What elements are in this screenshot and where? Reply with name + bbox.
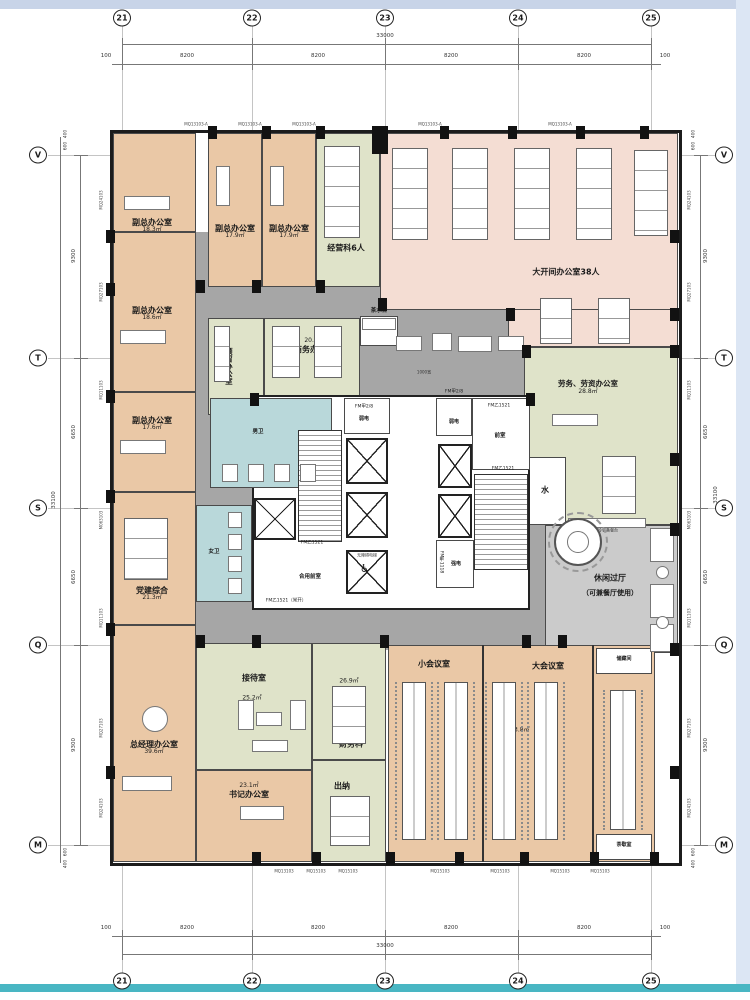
dim-text: 8200 [311, 53, 325, 59]
dim-tick [122, 38, 123, 70]
conference-table [534, 682, 558, 840]
structural-column [208, 126, 217, 139]
structural-column [650, 852, 659, 865]
dim-text: 400 [64, 130, 69, 139]
conference-table [610, 690, 636, 830]
structural-column [106, 490, 115, 503]
furniture [396, 336, 422, 351]
grid-bubble: 22 [243, 10, 261, 27]
dim-text: 8200 [311, 925, 325, 931]
stair-left [298, 430, 342, 542]
furniture [362, 318, 396, 330]
furniture [650, 584, 674, 618]
fm-label: FM乙1521 [488, 403, 510, 408]
dim-text: 8200 [577, 53, 591, 59]
furniture [498, 336, 524, 351]
structural-column [312, 852, 321, 865]
grid-bubble: 22 [243, 973, 261, 990]
structural-column [576, 126, 585, 139]
dim-text: 600 [692, 848, 697, 857]
fm-label: FM甲2/8 [355, 404, 373, 409]
dim-text: 8200 [444, 925, 458, 931]
elevator-shaft [438, 444, 472, 488]
structural-column [252, 280, 261, 293]
room-label: 接待室 [242, 673, 266, 682]
dim-tick [252, 930, 253, 960]
fm-label: FM甲1118 [438, 551, 443, 573]
dim-tick [518, 930, 519, 960]
furniture [228, 512, 242, 528]
room-open-office-lower [508, 310, 678, 347]
dim-tick [74, 845, 88, 846]
dim-line [80, 155, 81, 845]
dim-tick [74, 645, 88, 646]
structural-column [106, 623, 115, 636]
structural-column [106, 283, 115, 296]
room-label: 总经理办公室39.6㎡ [130, 740, 178, 756]
meeting-wall [592, 645, 594, 862]
curtain-wall-label: MQ15103 [490, 869, 509, 874]
dim-tick [385, 38, 386, 70]
dim-line [112, 64, 661, 65]
round-stool [656, 616, 669, 629]
furniture [274, 464, 290, 482]
grid-bubble: S [29, 500, 47, 517]
curtain-wall-label: MQ27103 [99, 282, 104, 301]
room-label: 大开间办公室38人 [532, 267, 599, 276]
dim-text: 33000 [376, 943, 394, 949]
dim-tick [74, 508, 88, 509]
weak-room-label: 弱电 [359, 417, 369, 423]
structural-column [670, 345, 679, 358]
fm-label: FM乙1521 [492, 466, 514, 471]
round-stool [656, 566, 669, 579]
furniture [270, 166, 284, 206]
furniture [120, 330, 166, 344]
grid-bubble: 25 [642, 973, 660, 990]
curtain-wall-label: MQ13103-A [548, 122, 571, 127]
room-label: 副总办公室18.3㎡ [132, 218, 172, 234]
dim-line [122, 44, 651, 45]
curtain-wall-label: MQ15103 [306, 869, 325, 874]
dim-text: 100 [101, 925, 112, 931]
dim-text: 8200 [444, 53, 458, 59]
room-label: 小会议室 [418, 659, 450, 668]
curtain-wall-label: MQ24103 [99, 798, 104, 817]
furniture [256, 712, 282, 726]
room-label: 副总办公室17.9㎡ [215, 224, 255, 240]
structural-column [670, 766, 679, 779]
structural-column [372, 126, 388, 154]
structural-column [506, 308, 515, 321]
round-stool [142, 706, 168, 732]
dim-tick [651, 930, 652, 960]
furniture [290, 700, 306, 730]
room-area: 26.9㎡ [339, 679, 358, 686]
structural-column [316, 280, 325, 293]
curtain-wall-label: MQ15103 [590, 869, 609, 874]
curtain-wall-label: MQ15103 [430, 869, 449, 874]
desk-cluster [452, 148, 488, 240]
room-label: 储藏间 [616, 657, 631, 663]
dim-text: 600 [64, 142, 69, 151]
structural-column [455, 852, 464, 865]
dim-text: 9300 [703, 249, 709, 263]
dim-tick [694, 358, 708, 359]
corridor-branch [196, 232, 208, 287]
furniture [432, 333, 452, 351]
furniture [222, 464, 238, 482]
dim-tick [252, 38, 253, 70]
grid-bubble: M [29, 837, 47, 854]
dim-text: 400 [692, 860, 697, 869]
dim-text: 33100 [51, 491, 57, 509]
room-label: 副总办公室18.6㎡ [132, 306, 172, 322]
room-vice2 [208, 133, 262, 287]
room-label: 23.1㎡书记办公室 [229, 783, 269, 799]
room-women-wc [196, 505, 252, 602]
desk-cluster [330, 796, 370, 846]
dim-tick [694, 645, 708, 646]
structural-column [106, 390, 115, 403]
furniture [552, 414, 598, 426]
furniture [124, 196, 170, 210]
curtain-wall-label: MQ11103 [687, 380, 692, 399]
dim-text: 8200 [180, 53, 194, 59]
dim-text: 6650 [71, 425, 77, 439]
furniture [248, 464, 264, 482]
furniture [120, 440, 166, 454]
grid-bubble: 24 [509, 973, 527, 990]
grid-bubble: V [715, 147, 733, 164]
curtain-wall-label: MQ24103 [687, 190, 692, 209]
furniture [300, 464, 316, 482]
elevator-shaft [254, 498, 296, 540]
curtain-wall-label: M063103 [99, 511, 104, 530]
desk-cluster [576, 148, 612, 240]
structural-column [508, 126, 517, 139]
elevator-shaft [346, 438, 388, 484]
room-label: 大会议室 [532, 661, 564, 670]
dim-text: 100 [660, 925, 671, 931]
grid-bubble: V [29, 147, 47, 164]
structural-column [670, 230, 679, 243]
meeting-wall [482, 645, 484, 862]
curtain-wall-label: M063103 [687, 511, 692, 530]
curtain-wall-label: MQ15103 [338, 869, 357, 874]
dim-text: 33100 [713, 486, 719, 504]
grid-bubble: T [715, 350, 733, 367]
structural-column [252, 852, 261, 865]
desk-cluster [332, 686, 366, 744]
furniture [238, 700, 254, 730]
desk-cluster [124, 518, 168, 580]
structural-column [440, 126, 449, 139]
dim-text: 400 [692, 130, 697, 139]
structural-column [640, 126, 649, 139]
curtain-wall-label: MQ27103 [99, 718, 104, 737]
grid-bubble: 21 [113, 973, 131, 990]
structural-column [386, 852, 395, 865]
structural-column [670, 643, 679, 656]
structural-column [522, 635, 531, 648]
curtain-wall-label: MQ15103 [550, 869, 569, 874]
curtain-wall-label: MQ11103 [687, 608, 692, 627]
structural-column [670, 453, 679, 466]
dim-text: 9300 [71, 249, 77, 263]
desk-cluster [634, 150, 668, 236]
round-table [554, 518, 602, 566]
structural-column [380, 635, 389, 648]
room-weak-right [436, 398, 472, 436]
dim-text: 6650 [71, 570, 77, 584]
curtain-wall-label: MQ11103 [99, 380, 104, 399]
dim-text: 400 [64, 860, 69, 869]
curtain-wall-label: MQ13103-A [238, 122, 261, 127]
accessible-elevator-label: 无障碍电梯 [357, 554, 377, 559]
dim-text: 600 [64, 848, 69, 857]
desk-cluster [514, 148, 550, 240]
fm-label: FM甲2/8 [445, 389, 463, 394]
structural-column [316, 126, 325, 139]
room-label: 劳务、劳资办公室28.8㎡ [558, 380, 618, 396]
room-label: 经营科6人 [327, 243, 365, 252]
women-wc-label: 女卫 [208, 549, 219, 555]
room-label-sub: （可兼餐厅使用） [582, 589, 638, 597]
desk-cluster [214, 326, 230, 382]
structural-column [262, 126, 271, 139]
desk-cluster [540, 298, 572, 344]
dim-tick [518, 38, 519, 70]
elevator-shaft [346, 492, 388, 538]
structural-column [196, 635, 205, 648]
desk-cluster [602, 456, 636, 514]
furniture [228, 578, 242, 594]
conference-table [444, 682, 468, 840]
room-label: 党建综合21.3㎡ [136, 586, 168, 602]
structural-column [520, 852, 529, 865]
structural-column [250, 393, 259, 406]
dim-tick [74, 155, 88, 156]
furniture [458, 336, 492, 352]
shared-front-label: 合用前室 [299, 574, 321, 580]
curtain-wall-label: MQ24103 [687, 798, 692, 817]
men-wc-label: 男卫 [252, 429, 263, 435]
elevator-shaft [438, 494, 472, 538]
furniture [252, 740, 288, 752]
front-room-label: 前室 [494, 433, 505, 439]
dim-tick [694, 155, 708, 156]
dim-text: 8200 [180, 925, 194, 931]
grid-bubble: 23 [376, 973, 394, 990]
dim-text: 9300 [71, 738, 77, 752]
curtain-wall-label: MQ24103 [99, 190, 104, 209]
dim-text: 600 [692, 142, 697, 151]
structural-column [378, 298, 387, 311]
dim-tick [651, 38, 652, 70]
room-label: 茶歇室 [616, 843, 631, 849]
furniture [228, 534, 242, 550]
fm-label: FM乙1521（常开） [266, 598, 306, 603]
dim-text: 33000 [376, 33, 394, 39]
room-label: 副总办公室17.9㎡ [269, 224, 309, 240]
conference-table [492, 682, 516, 840]
grid-bubble: 23 [376, 10, 394, 27]
furniture [122, 776, 172, 791]
dim-text: 8200 [577, 925, 591, 931]
dim-text: 100 [660, 53, 671, 59]
dim-tick [694, 845, 708, 846]
grid-bubble: M [715, 837, 733, 854]
structural-column [558, 635, 567, 648]
structural-column [106, 230, 115, 243]
fm-label: FM乙1521 [301, 540, 323, 545]
structural-column [526, 393, 535, 406]
dim-tick [694, 508, 708, 509]
room-vice3 [262, 133, 316, 287]
conference-table [402, 682, 426, 840]
furniture [240, 806, 284, 820]
desk-cluster [314, 326, 342, 378]
structural-column [590, 852, 599, 865]
dim-tick [74, 358, 88, 359]
dim-line [112, 936, 661, 937]
grid-bubble: Q [29, 637, 47, 654]
curtain-wall-label: MQ13103-A [418, 122, 441, 127]
dim-text: 6650 [703, 425, 709, 439]
structural-column [106, 766, 115, 779]
grid-bubble: T [29, 350, 47, 367]
dim-line [60, 137, 61, 863]
structural-column [670, 523, 679, 536]
grid-bubble: 25 [642, 10, 660, 27]
curtain-wall-label: MQ27103 [687, 718, 692, 737]
furniture [216, 166, 230, 206]
desk-cluster [272, 326, 300, 378]
dim-text: 100 [101, 53, 112, 59]
room-label: 休闲过厅 [594, 573, 626, 582]
furniture [228, 556, 242, 572]
dim-text: 6650 [703, 570, 709, 584]
dim-line [700, 155, 701, 845]
curtain-wall-label: MQ13103-A [184, 122, 207, 127]
wheelchair-icon: ♿ [360, 562, 370, 575]
dim-line [122, 954, 651, 955]
room-label: 副总办公室17.6㎡ [132, 416, 172, 432]
floor-plan-canvas: 21212222232324242525VVTTSSQQMM3300033000… [0, 0, 750, 1000]
curtain-wall-label: MQ27103 [687, 282, 692, 301]
desk-cluster [324, 146, 360, 238]
desk-cluster [598, 298, 630, 344]
grid-bubble: 24 [509, 10, 527, 27]
grid-bubble: 21 [113, 10, 131, 27]
structural-column [522, 345, 531, 358]
curtain-wall-label: MQ13103 [274, 869, 293, 874]
stair-right [474, 474, 528, 570]
dim-text: 9300 [703, 738, 709, 752]
structural-column [252, 635, 261, 648]
curtain-wall-label: MQ11103 [99, 608, 104, 627]
water-room-label: 水 [541, 485, 549, 494]
weak-room-label: 弱电 [449, 420, 459, 426]
corridor-width-label: 1000宽 [417, 371, 431, 376]
structural-column [670, 308, 679, 321]
strong-room-label: 强电 [451, 562, 461, 568]
dim-tick [122, 930, 123, 960]
room-label: 出纳 [334, 781, 350, 790]
desk-cluster [392, 148, 428, 240]
curtain-wall-label: MQ13103-A [292, 122, 315, 127]
grid-bubble: Q [715, 637, 733, 654]
structural-column [196, 280, 205, 293]
